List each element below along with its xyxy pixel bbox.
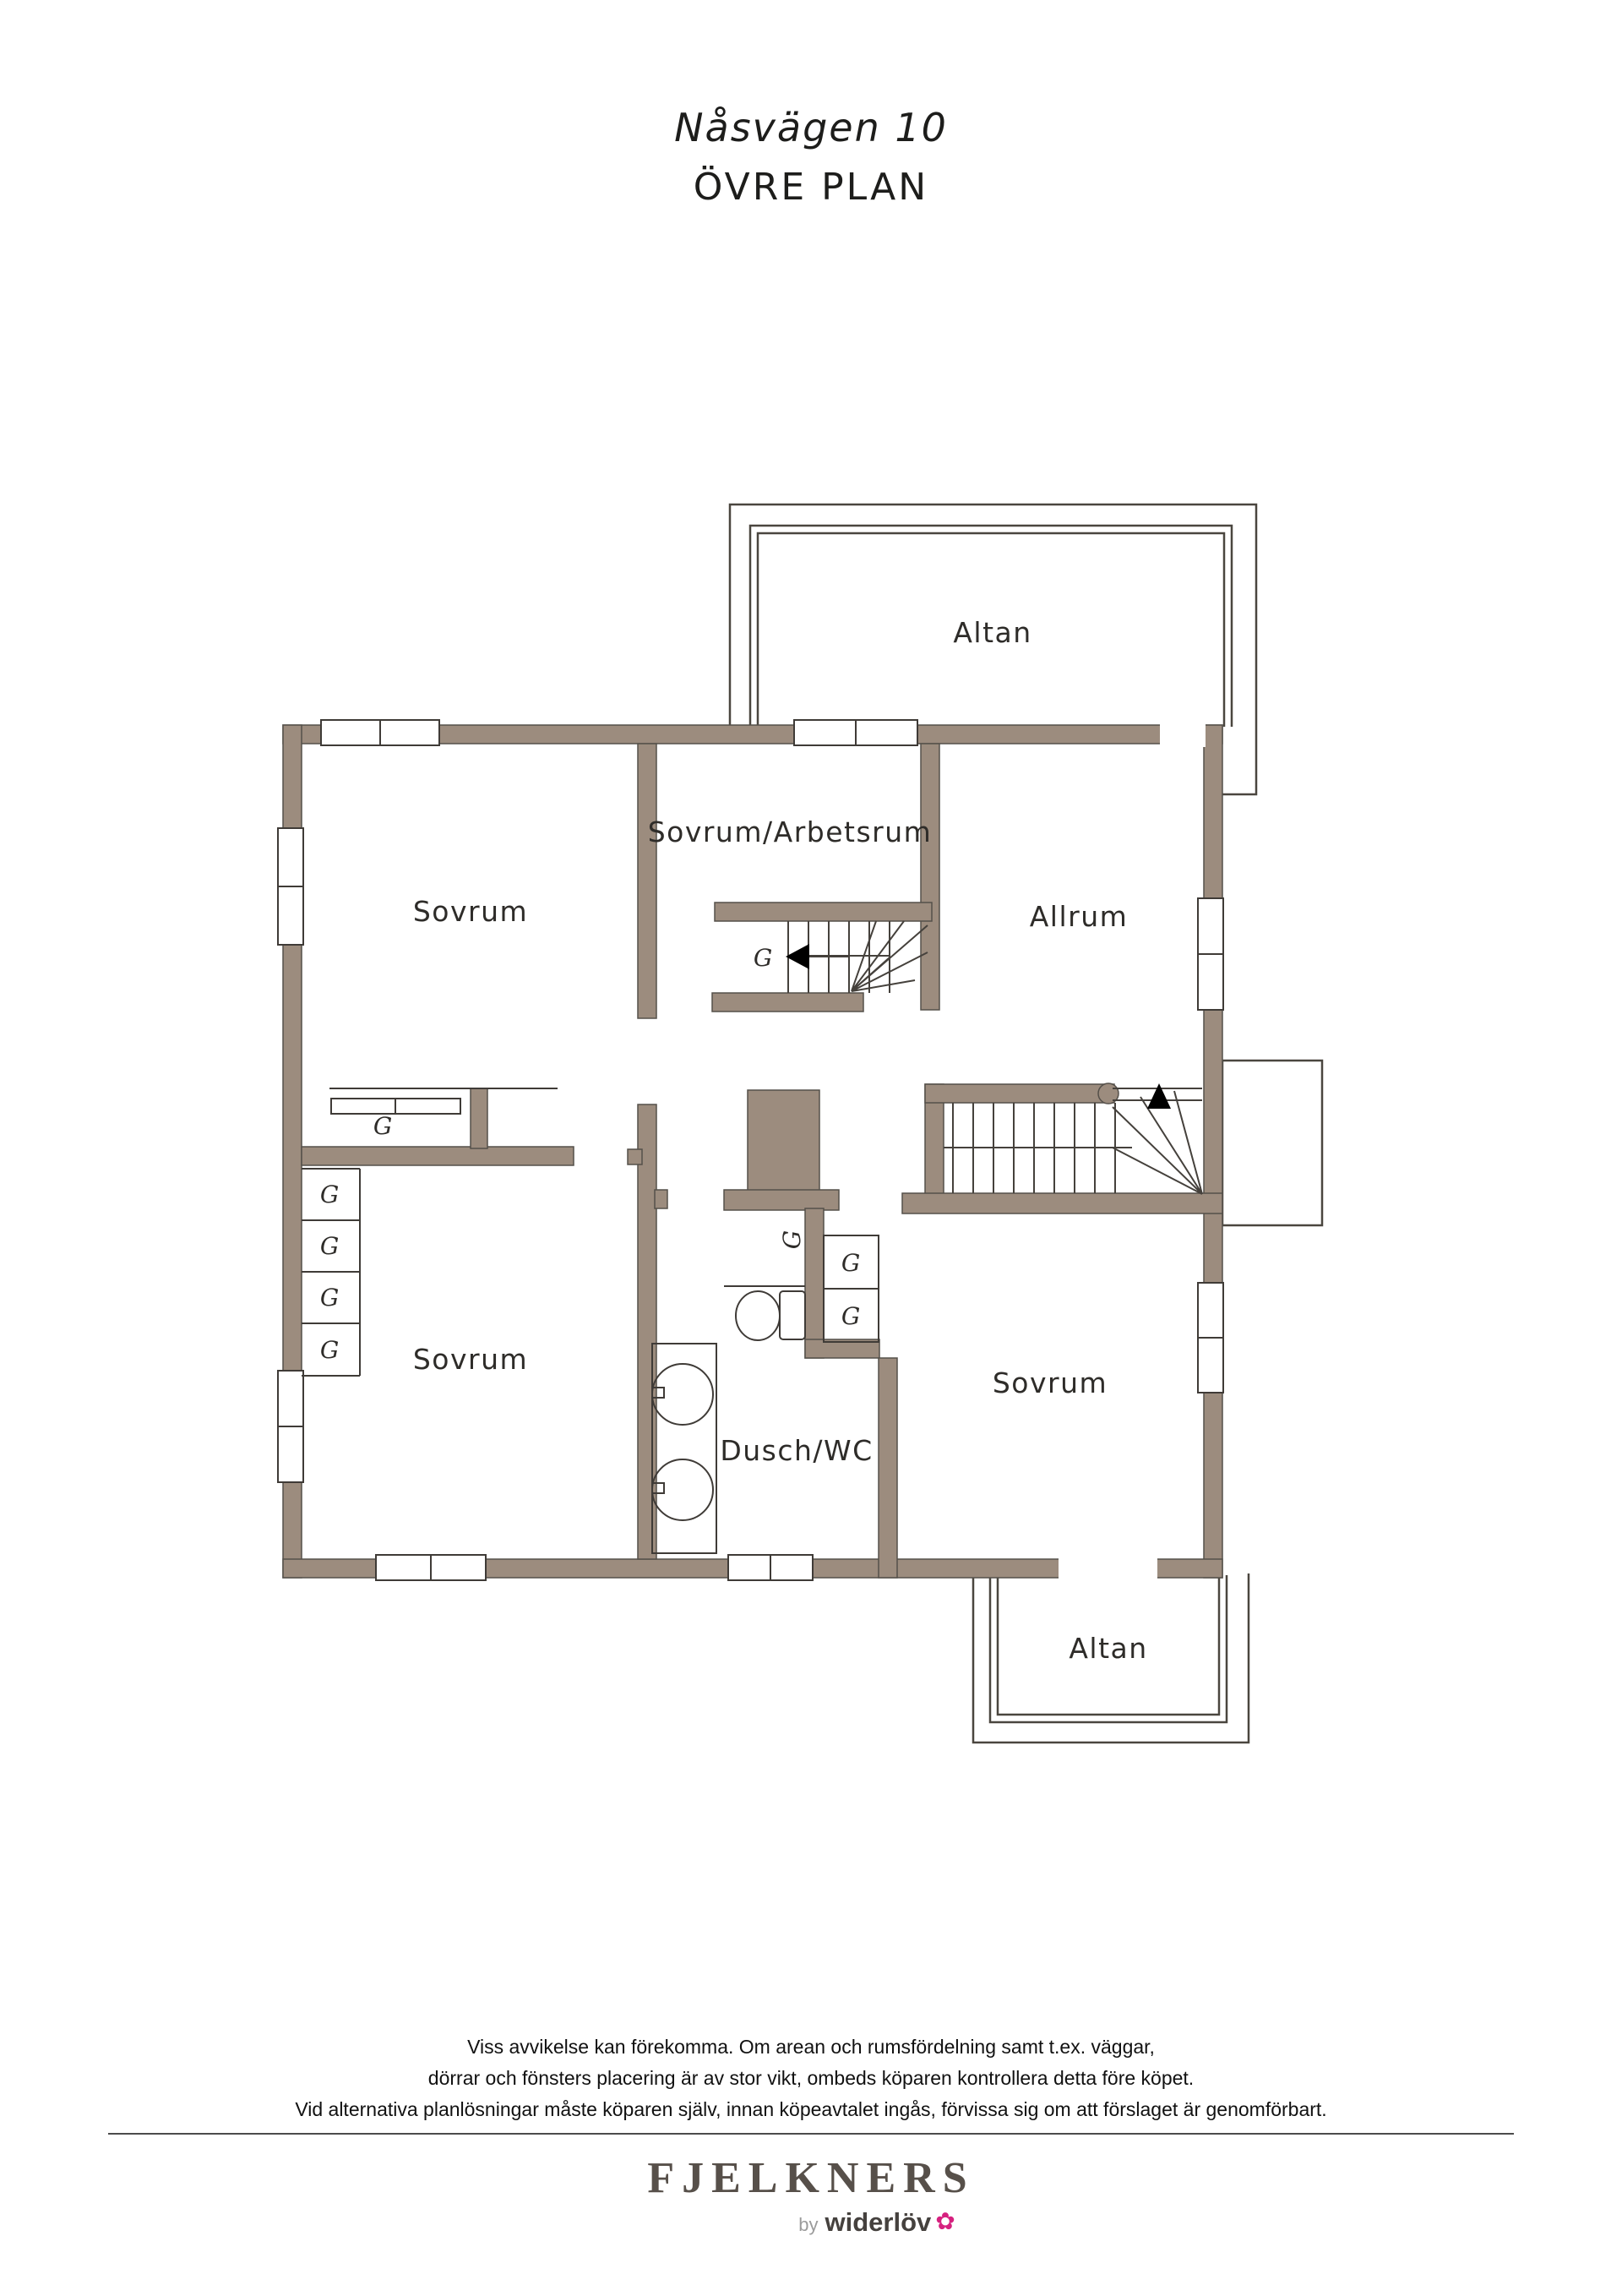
door-opening-top-altan: [1160, 722, 1206, 747]
door-opening-bottom-altan: [1059, 1556, 1157, 1581]
closet-label: G: [373, 1112, 392, 1140]
wall-interior: [638, 744, 656, 1018]
wall-stairwell-bottom: [902, 1193, 1222, 1213]
room-label-sovrum-lower-left: Sovrum: [413, 1343, 528, 1376]
window: [728, 1555, 813, 1580]
bathroom-fixtures: [652, 1286, 805, 1553]
wall-stairwell-top: [925, 1084, 1114, 1103]
wall-interior: [805, 1208, 824, 1358]
wall-stair-bottom: [712, 993, 863, 1012]
floor-plan-page: Nåsvägen 10 ÖVRE PLAN: [0, 0, 1622, 2296]
room-label-sovrum-upper-left: Sovrum: [413, 895, 528, 928]
closet-label-rotated: G: [778, 1230, 806, 1249]
wall-interior: [628, 1149, 642, 1164]
wall-stair-top: [715, 903, 932, 921]
brand-byline: bywiderlöv✿: [798, 2207, 955, 2238]
window: [1198, 898, 1223, 1010]
side-landing: [1222, 1061, 1322, 1225]
window: [278, 1371, 303, 1482]
room-label-altan-bottom: Altan: [1069, 1632, 1147, 1665]
closet-label: G: [320, 1232, 339, 1260]
terrace-top-altan: [730, 504, 1256, 794]
closet-label: G: [841, 1249, 860, 1277]
closet-label: G: [841, 1302, 860, 1330]
stair-direction-arrow: [786, 944, 809, 969]
window: [1198, 1283, 1223, 1393]
room-label-allrum: Allrum: [1030, 900, 1129, 933]
closet-label: G: [754, 944, 772, 972]
closet-label: G: [320, 1284, 339, 1312]
toilet-tank-icon: [780, 1291, 805, 1339]
closet-label: G: [320, 1181, 339, 1208]
room-label-altan-top: Altan: [953, 616, 1031, 649]
disclaimer-line-2: dörrar och fönsters placering är av stor…: [0, 2063, 1622, 2094]
flower-icon: ✿: [935, 2208, 955, 2234]
wall-interior: [471, 1088, 487, 1148]
byline-brand: widerlöv: [825, 2207, 932, 2237]
room-label-dusch-wc: Dusch/WC: [720, 1434, 873, 1467]
closet-label: G: [320, 1336, 339, 1364]
wall-exterior-right: [1204, 725, 1222, 1578]
disclaimer-line-3: Vid alternativa planlösningar måste köpa…: [0, 2094, 1622, 2125]
window: [321, 720, 439, 745]
stair-direction-arrow: [1147, 1083, 1171, 1109]
wall-interior: [655, 1190, 667, 1208]
brand-logo: FJELKNERS: [0, 2153, 1622, 2203]
room-label-sovrum-arbetsrum: Sovrum/Arbetsrum: [648, 815, 933, 848]
room-label-sovrum-lower-right: Sovrum: [993, 1366, 1108, 1399]
wall-interior: [638, 1104, 656, 1559]
window: [278, 828, 303, 945]
wall-interior: [879, 1358, 897, 1578]
washbasin-icon: [652, 1459, 713, 1520]
wall-interior: [921, 744, 939, 1010]
byline-prefix: by: [798, 2214, 818, 2235]
wall-interior: [302, 1147, 574, 1165]
wall-interior: [724, 1190, 839, 1210]
toilet-bowl-icon: [736, 1291, 780, 1340]
chimney-shaft: [748, 1090, 819, 1196]
floor-plan-drawing: Altan Sovrum Sovrum/Arbetsrum Allrum Sov…: [0, 0, 1622, 2296]
disclaimer-text: Viss avvikelse kan förekomma. Om arean o…: [0, 2031, 1622, 2125]
window: [376, 1555, 486, 1580]
window: [794, 720, 917, 745]
footer-divider: [108, 2133, 1514, 2135]
disclaimer-line-1: Viss avvikelse kan förekomma. Om arean o…: [0, 2031, 1622, 2063]
washbasin-icon: [652, 1364, 713, 1425]
